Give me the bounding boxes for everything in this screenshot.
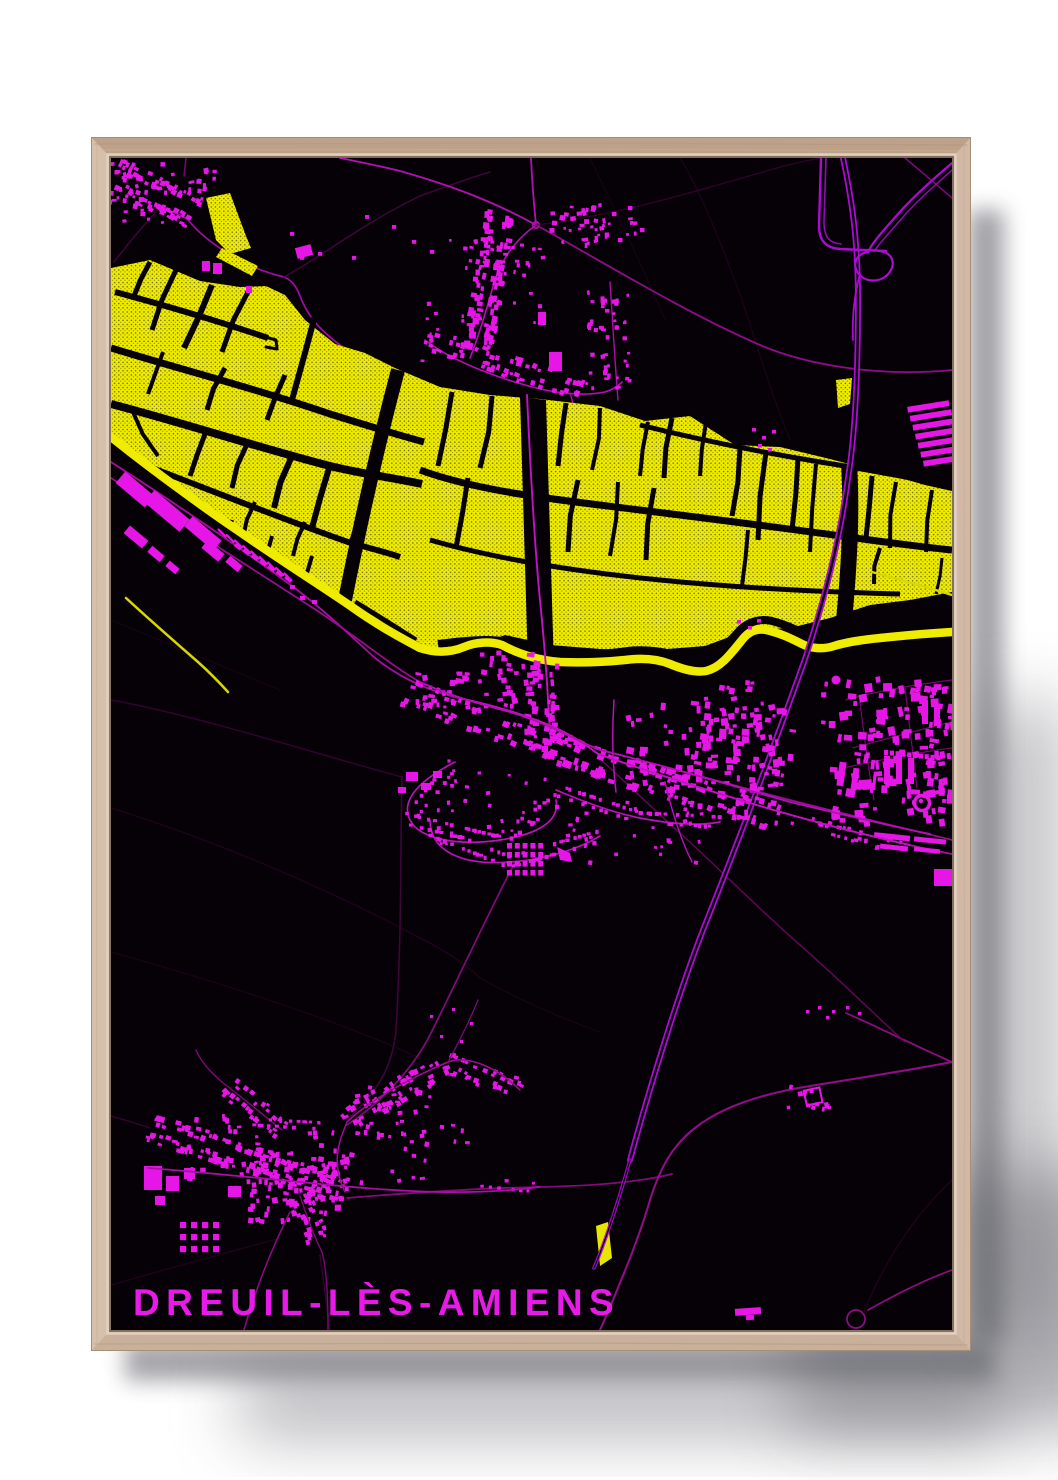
svg-text:DREUIL-LÈS-AMIENS: DREUIL-LÈS-AMIENS [133,1282,620,1323]
